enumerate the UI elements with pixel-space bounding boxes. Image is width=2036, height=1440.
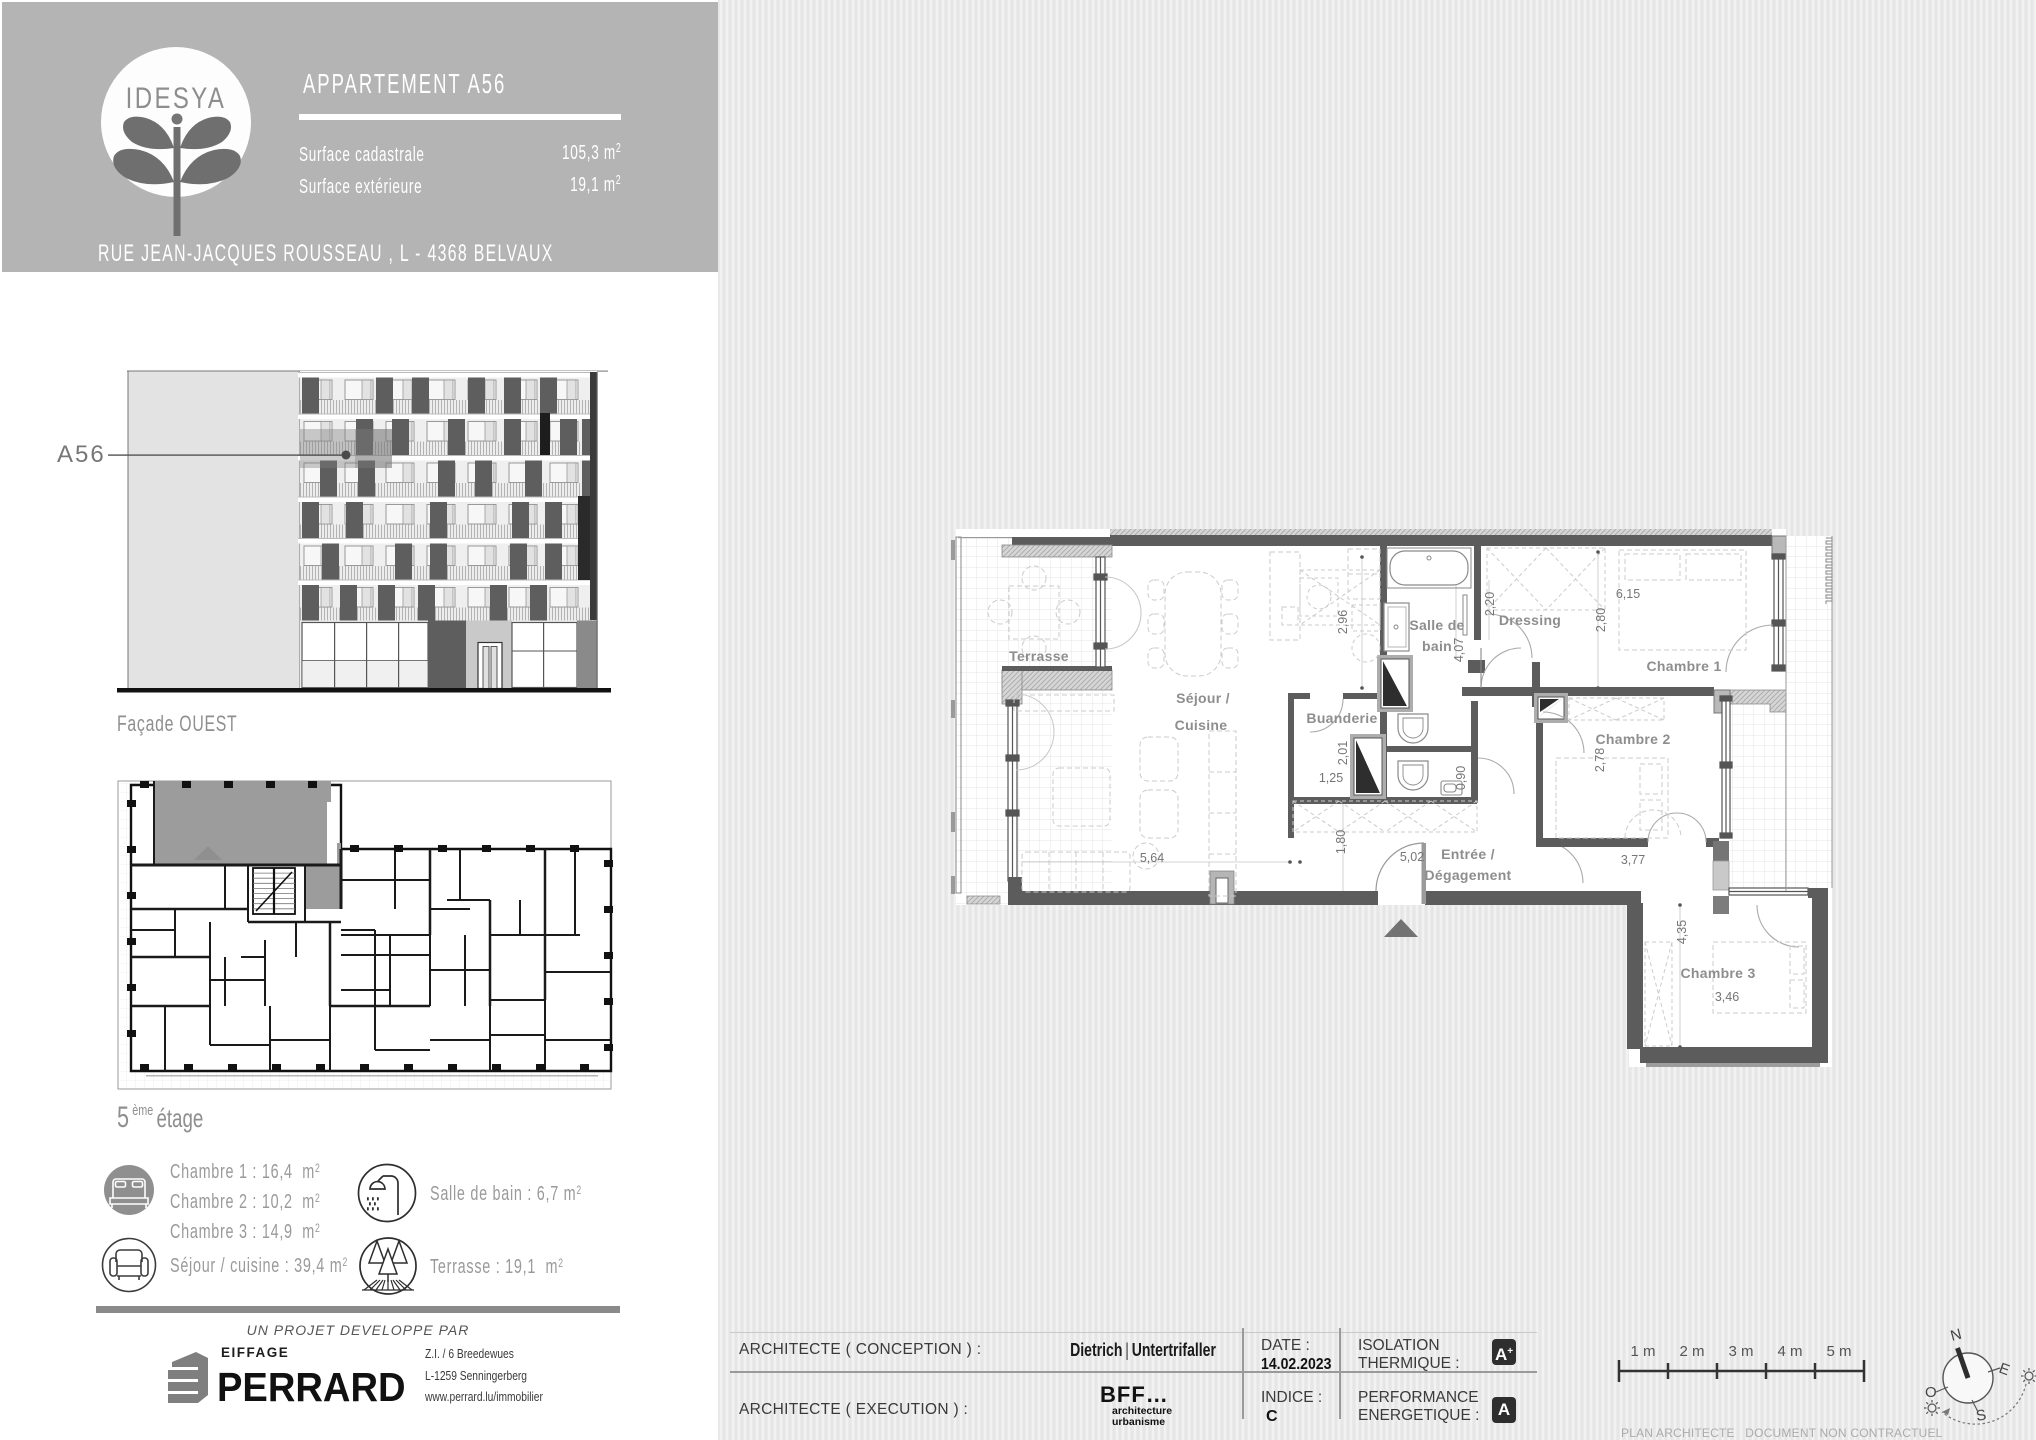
svg-text:O: O bbox=[1925, 1384, 1937, 1401]
svg-text:Chambre 3: Chambre 3 bbox=[1680, 965, 1755, 981]
svg-text:6,15: 6,15 bbox=[1616, 587, 1640, 601]
svg-text:bain: bain bbox=[1422, 638, 1452, 654]
svg-text:E: E bbox=[1997, 1360, 2012, 1379]
svg-text:2,20: 2,20 bbox=[1483, 592, 1497, 616]
svg-text:Buanderie: Buanderie bbox=[1306, 710, 1377, 726]
svg-text:Dressing: Dressing bbox=[1499, 612, 1561, 628]
svg-text:3,77: 3,77 bbox=[1621, 853, 1645, 867]
svg-text:5 m: 5 m bbox=[1826, 1343, 1851, 1360]
svg-text:0,90: 0,90 bbox=[1454, 766, 1468, 790]
svg-text:Chambre 2: Chambre 2 bbox=[1595, 731, 1670, 747]
svg-text:IDESYA: IDESYA bbox=[126, 80, 227, 114]
svg-text:3 m: 3 m bbox=[1728, 1343, 1753, 1360]
svg-text:Salle de: Salle de bbox=[1409, 617, 1464, 633]
svg-text:2,96: 2,96 bbox=[1336, 610, 1350, 634]
svg-text:1 m: 1 m bbox=[1630, 1343, 1655, 1360]
svg-text:N: N bbox=[1949, 1326, 1964, 1345]
svg-text:2,80: 2,80 bbox=[1594, 608, 1608, 632]
svg-text:4 m: 4 m bbox=[1777, 1343, 1802, 1360]
svg-text:Cuisine: Cuisine bbox=[1175, 717, 1228, 733]
svg-text:1,25: 1,25 bbox=[1319, 771, 1343, 785]
svg-text:4,35: 4,35 bbox=[1675, 920, 1689, 944]
svg-text:2 m: 2 m bbox=[1679, 1343, 1704, 1360]
svg-text:3,46: 3,46 bbox=[1715, 990, 1739, 1004]
svg-text:Entrée /: Entrée / bbox=[1441, 846, 1495, 862]
svg-text:2,01: 2,01 bbox=[1336, 741, 1350, 765]
svg-text:Séjour /: Séjour / bbox=[1176, 690, 1230, 706]
svg-text:5,64: 5,64 bbox=[1140, 851, 1164, 865]
svg-text:Terrasse: Terrasse bbox=[1009, 648, 1069, 664]
svg-text:1,80: 1,80 bbox=[1334, 830, 1348, 854]
svg-text:Chambre 1: Chambre 1 bbox=[1646, 658, 1721, 674]
svg-text:Dégagement: Dégagement bbox=[1424, 867, 1511, 883]
svg-text:4,07: 4,07 bbox=[1452, 638, 1466, 662]
svg-text:2,78: 2,78 bbox=[1593, 748, 1607, 772]
svg-text:5,02: 5,02 bbox=[1400, 850, 1424, 864]
